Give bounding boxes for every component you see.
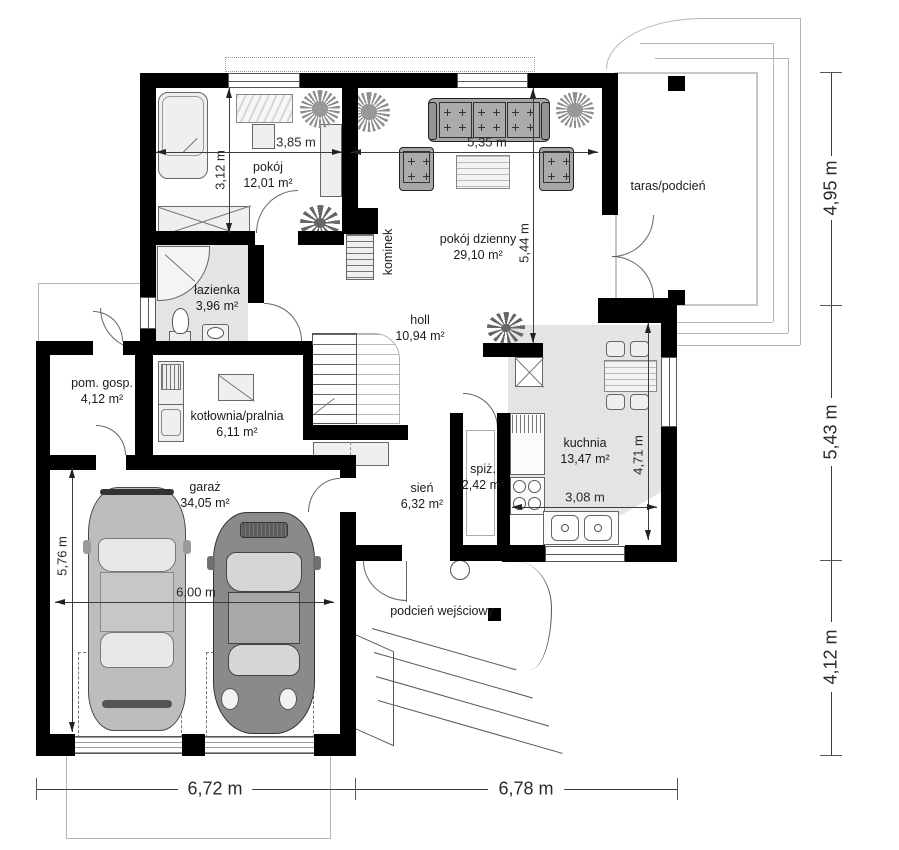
car-light-rear-window — [100, 632, 174, 668]
room-area: 10,94 m² — [395, 328, 444, 344]
dim-line — [55, 602, 334, 603]
wall — [140, 73, 228, 88]
dim-arrow — [530, 333, 536, 343]
dim-label: 6,72 m — [187, 779, 242, 800]
car-dark-roof — [228, 592, 300, 644]
room-label-lazienka: łazienka 3,96 m² — [194, 282, 240, 315]
dim-line — [564, 789, 677, 790]
wall — [300, 73, 457, 88]
dim-line — [831, 466, 832, 560]
wall — [483, 343, 543, 357]
room-label-holl: holl 10,94 m² — [395, 312, 444, 345]
room-label-kuchnia: kuchnia 13,47 m² — [560, 435, 609, 468]
dim-line — [831, 305, 832, 398]
driveway-line — [66, 754, 67, 838]
fireplace — [346, 234, 374, 280]
dim-arrow — [55, 599, 65, 605]
room-name: pom. gosp. — [71, 375, 133, 391]
utility-sink-basin — [161, 409, 181, 436]
car-dark-hood-vent — [240, 522, 288, 538]
dim-arrow — [530, 88, 536, 98]
dim-label: 4,95 m — [821, 160, 842, 215]
burner — [528, 497, 541, 510]
roof-line — [677, 322, 773, 323]
dim-line — [533, 88, 534, 343]
room-label-podcien: podcień wejściowy — [390, 603, 494, 619]
dim-line — [831, 220, 832, 305]
door-arc-bathroom — [264, 303, 302, 341]
wall — [598, 298, 677, 323]
dim-tick — [820, 560, 842, 561]
wall — [661, 323, 677, 357]
room-name: kominek — [380, 229, 396, 276]
armchair-cushion — [543, 151, 570, 183]
dim-line — [351, 152, 598, 153]
room-name: taras/podcień — [630, 178, 705, 194]
armchair-cushion — [403, 151, 430, 183]
terrace-pillar — [668, 290, 685, 305]
car-mirror — [313, 556, 321, 570]
wall — [661, 427, 677, 545]
wall — [602, 73, 618, 215]
dim-tick — [36, 778, 37, 800]
room-label-spiz: spiż. 2,42 m² — [462, 461, 504, 494]
wall — [36, 341, 93, 355]
toilet-bowl — [172, 308, 189, 334]
room-area: 29,10 m² — [440, 247, 516, 263]
dim-arrow — [512, 504, 522, 510]
room-name: podcień wejściowy — [390, 603, 494, 619]
car-dark-rear-window — [228, 644, 300, 676]
desk — [252, 124, 275, 149]
wall — [298, 231, 344, 245]
room-area: 12,01 m² — [243, 175, 292, 191]
sink-drain — [594, 524, 602, 532]
roof-line — [640, 43, 773, 44]
dim-line — [831, 692, 832, 755]
door-arc-utility-bottom — [96, 425, 126, 455]
sofa-cushion — [439, 102, 472, 138]
dim-line — [72, 468, 73, 732]
room-label-kotlownia: kotłownia/pralnia 6,11 m² — [190, 408, 283, 441]
room-name: pokój dzienny — [440, 231, 516, 247]
room-name: spiż. — [462, 461, 504, 477]
wall — [303, 345, 313, 428]
dim-line — [36, 789, 178, 790]
dining-chair — [606, 341, 625, 357]
dim-arrow — [645, 530, 651, 540]
room-name: pokój — [243, 159, 292, 175]
front-door-leaf — [406, 561, 407, 602]
dim-tick — [820, 755, 842, 756]
dim-tick — [820, 305, 842, 306]
car-mirror — [207, 556, 215, 570]
room-label-pokoj-dzienny: pokój dzienny 29,10 m² — [440, 231, 516, 264]
wall — [140, 73, 156, 297]
wall — [36, 455, 96, 470]
room-area: 6,32 m² — [401, 496, 443, 512]
roof-line — [655, 58, 788, 59]
door-arc-garage — [308, 478, 340, 512]
wall — [36, 341, 50, 756]
dim-line — [512, 507, 657, 508]
dim-label: 5,44 m — [517, 223, 532, 263]
car-dark-headlight — [279, 688, 297, 710]
room-name: holl — [395, 312, 444, 328]
room-label-kominek: kominek — [380, 229, 396, 276]
bed-mattress — [162, 96, 204, 156]
room-area: 34,05 m² — [180, 495, 229, 511]
dining-table — [604, 360, 657, 392]
room-name: kuchnia — [560, 435, 609, 451]
bathroom-sink-basin — [207, 327, 224, 339]
room-label-taras: taras/podcień — [630, 178, 705, 194]
sofa-arm — [541, 102, 550, 140]
roof-line — [800, 18, 801, 345]
dim-label: 3,85 m — [276, 135, 316, 150]
dim-tick — [677, 778, 678, 800]
entry-step — [378, 700, 563, 754]
car-mirror — [83, 540, 91, 554]
wall — [126, 455, 340, 470]
door-arc-bedroom — [256, 190, 298, 233]
dim-label: 3,12 m — [213, 150, 228, 190]
dim-label: 3,08 m — [565, 490, 605, 505]
sofa-cushion — [507, 102, 540, 138]
dim-arrow — [588, 149, 598, 155]
window — [457, 73, 528, 88]
room-label-garaz: garaż 34,05 m² — [180, 479, 229, 512]
dim-line — [156, 152, 342, 153]
floor-plan: pokój 12,01 m² pokój dzienny 29,10 m² ta… — [0, 0, 899, 850]
dim-line — [831, 72, 832, 156]
dim-label: 4,12 m — [821, 629, 842, 684]
dining-chair — [630, 341, 649, 357]
wall — [248, 245, 264, 303]
dim-label: 5,43 m — [821, 404, 842, 459]
dim-line — [252, 789, 355, 790]
plant — [556, 92, 594, 128]
dim-label: 6,78 m — [498, 779, 553, 800]
dim-label: 5,76 m — [55, 536, 70, 576]
wall — [342, 88, 358, 208]
window — [228, 73, 300, 88]
stairs-upper-flight — [356, 333, 400, 424]
sofa-arm — [428, 102, 437, 140]
stairs-divider — [356, 333, 357, 424]
bedroom-cabinet — [320, 124, 342, 197]
side-door-frame — [140, 297, 156, 329]
coffee-table — [456, 155, 510, 189]
room-name: sień — [401, 480, 443, 496]
car-mirror — [183, 540, 191, 554]
car-light-cowl — [100, 489, 174, 495]
wall — [450, 545, 502, 561]
roof-line — [773, 43, 774, 322]
plant — [300, 90, 340, 128]
wall — [135, 355, 153, 455]
window — [661, 357, 677, 427]
wall — [340, 512, 356, 756]
car-light-windshield — [98, 538, 176, 572]
terrace-pillar — [668, 76, 685, 91]
dim-arrow — [647, 504, 657, 510]
room-name: garaż — [180, 479, 229, 495]
room-name: kotłownia/pralnia — [190, 408, 283, 424]
plant — [487, 312, 525, 344]
entry-step-curve — [500, 562, 552, 670]
washer-drum — [161, 364, 181, 390]
dim-line — [229, 88, 230, 233]
dim-arrow — [645, 323, 651, 333]
car-dark-windshield — [226, 552, 302, 592]
room-area: 6,11 m² — [190, 424, 283, 440]
roof-line — [698, 18, 800, 19]
dim-line — [831, 560, 832, 622]
dim-arrow — [69, 468, 75, 478]
room-area: 13,47 m² — [560, 451, 609, 467]
room-area: 4,12 m² — [71, 391, 133, 407]
dim-label: 6,00 m — [176, 585, 216, 600]
sink-drain — [561, 524, 569, 532]
wall — [36, 734, 75, 756]
room-label-sien: sień 6,32 m² — [401, 480, 443, 513]
entry-step — [376, 676, 549, 727]
dim-arrow — [226, 88, 232, 98]
fridge-grill — [512, 415, 543, 433]
wall — [342, 208, 378, 234]
room-name: łazienka — [194, 282, 240, 298]
dining-chair — [606, 394, 625, 410]
room-label-pom-gosp: pom. gosp. 4,12 m² — [71, 375, 133, 408]
roof-line — [788, 58, 789, 333]
wall — [140, 231, 255, 245]
car-light-rear — [102, 700, 172, 708]
dining-chair — [630, 394, 649, 410]
dim-label: 5,35 m — [467, 135, 507, 150]
wall — [340, 455, 356, 478]
burner — [528, 480, 541, 493]
roof-line — [677, 333, 788, 334]
room-area: 3,96 m² — [194, 298, 240, 314]
door-arc-front-entrance — [363, 561, 407, 601]
wall — [502, 545, 545, 562]
driveway-line — [66, 838, 331, 839]
window — [545, 546, 625, 562]
burner — [513, 480, 526, 493]
garage-door — [75, 736, 182, 754]
wall — [625, 545, 677, 562]
wall — [314, 734, 356, 756]
room-area: 2,42 m² — [462, 477, 504, 493]
dim-arrow — [69, 722, 75, 732]
wall — [182, 734, 205, 756]
bedroom-rug — [236, 94, 293, 123]
dim-arrow — [226, 223, 232, 233]
dim-line — [355, 789, 488, 790]
dim-tick — [820, 72, 842, 73]
roof-line — [677, 345, 800, 346]
garage-door — [205, 736, 314, 754]
dim-arrow — [351, 149, 361, 155]
wall — [303, 425, 408, 440]
dim-tick — [355, 778, 356, 800]
driveway-line — [330, 754, 331, 838]
dim-arrow — [332, 149, 342, 155]
sofa-cushion — [473, 102, 506, 138]
porch-column — [450, 560, 470, 580]
room-label-pokoj: pokój 12,01 m² — [243, 159, 292, 192]
dim-arrow — [156, 149, 166, 155]
door-arc-pantry — [463, 393, 498, 428]
car-dark-headlight — [221, 688, 239, 710]
roof-overhang-dotted — [225, 57, 535, 72]
wall — [123, 341, 312, 355]
dim-label: 4,71 m — [631, 435, 646, 475]
dim-arrow — [324, 599, 334, 605]
